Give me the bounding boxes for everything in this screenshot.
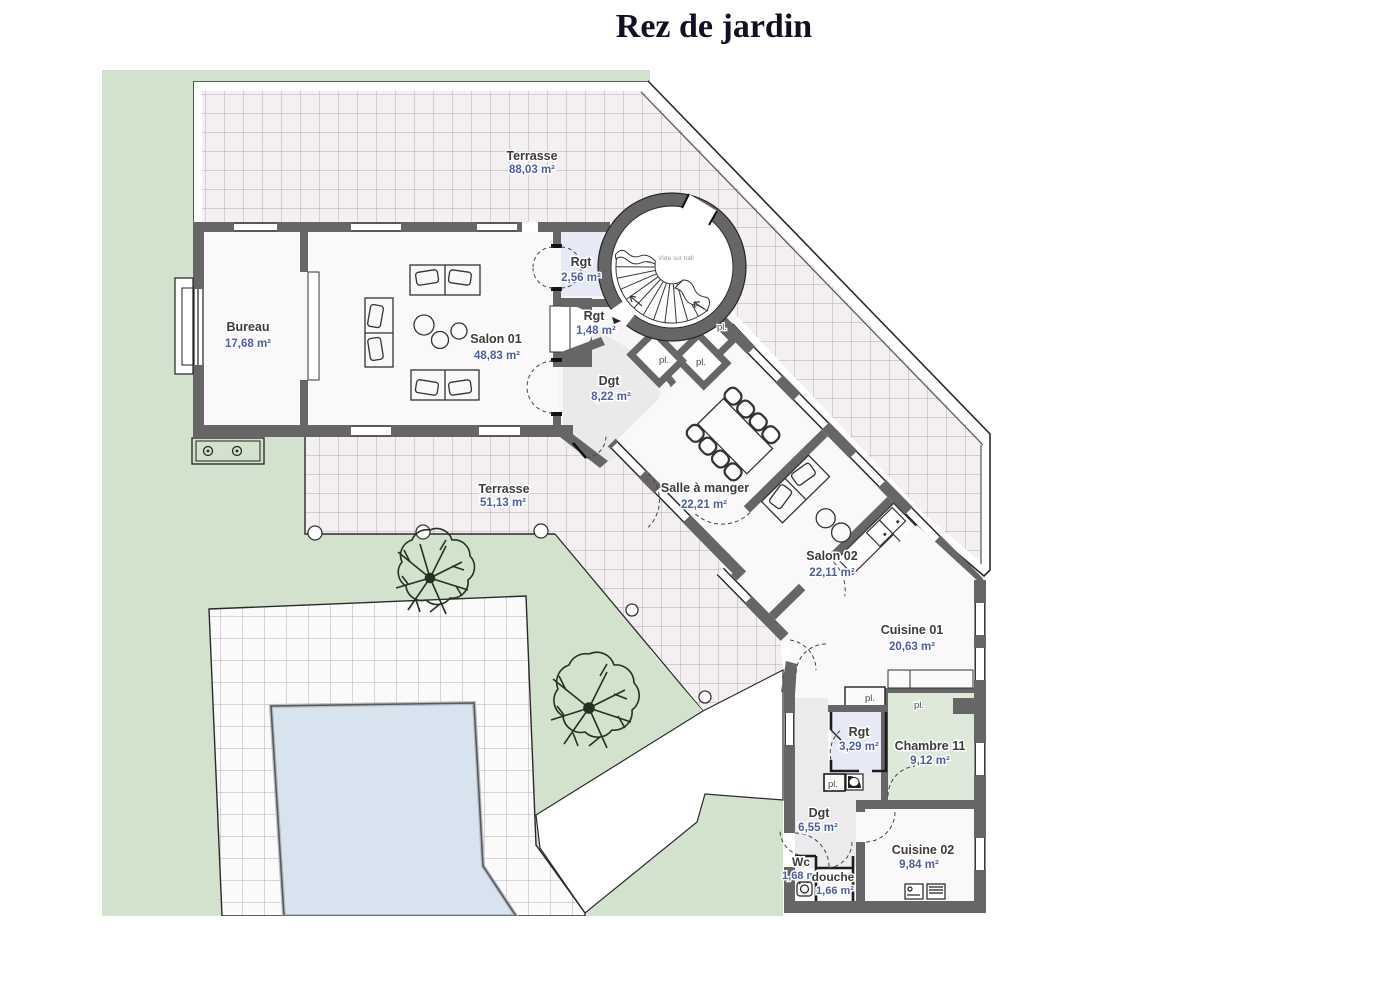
svg-text:Cuisine 01: Cuisine 01 <box>881 623 944 637</box>
svg-text:pl.: pl. <box>717 322 727 333</box>
svg-text:Salon 02: Salon 02 <box>806 549 857 563</box>
svg-text:9,84 m²: 9,84 m² <box>899 859 939 871</box>
svg-text:9,12 m²: 9,12 m² <box>910 755 950 767</box>
svg-text:pl.: pl. <box>865 693 875 704</box>
svg-text:Salon 01: Salon 01 <box>470 332 521 346</box>
svg-text:pl.: pl. <box>696 357 706 368</box>
svg-text:Rgt: Rgt <box>584 309 606 323</box>
svg-text:Dgt: Dgt <box>809 806 831 820</box>
svg-text:22,21 m²: 22,21 m² <box>681 499 727 511</box>
svg-text:douche: douche <box>812 870 855 884</box>
svg-text:Rez de jardin: Rez de jardin <box>616 8 813 45</box>
svg-text:Terrasse: Terrasse <box>506 149 557 163</box>
svg-text:1,66 m²: 1,66 m² <box>816 885 854 897</box>
svg-text:Dgt: Dgt <box>599 374 621 388</box>
svg-text:pl.: pl. <box>828 779 838 790</box>
svg-text:Rgt: Rgt <box>571 255 593 269</box>
svg-text:48,83 m²: 48,83 m² <box>474 350 520 362</box>
svg-text:51,13 m²: 51,13 m² <box>480 497 526 509</box>
svg-text:Terrasse: Terrasse <box>478 482 529 496</box>
svg-text:88,03 m²: 88,03 m² <box>509 164 555 176</box>
svg-text:20,63 m²: 20,63 m² <box>889 641 935 653</box>
svg-text:2,56 m²: 2,56 m² <box>561 272 601 284</box>
svg-text:pl.: pl. <box>659 355 669 366</box>
svg-text:8,22 m²: 8,22 m² <box>591 391 631 403</box>
svg-text:Salle à manger: Salle à manger <box>661 481 749 495</box>
svg-text:Cuisine 02: Cuisine 02 <box>892 843 955 857</box>
svg-text:Wc: Wc <box>792 855 810 869</box>
svg-text:22,11 m²: 22,11 m² <box>809 567 855 579</box>
svg-text:Rgt: Rgt <box>849 725 871 739</box>
svg-text:Chambre 11: Chambre 11 <box>895 739 966 753</box>
svg-text:pl.: pl. <box>914 700 924 711</box>
svg-text:1,48 m²: 1,48 m² <box>576 325 616 337</box>
svg-text:Bureau: Bureau <box>226 320 269 334</box>
svg-text:3,29 m²: 3,29 m² <box>839 741 879 753</box>
svg-text:Vide sur hall: Vide sur hall <box>658 255 694 262</box>
svg-text:6,55 m²: 6,55 m² <box>798 822 838 834</box>
svg-text:17,68 m²: 17,68 m² <box>225 338 271 350</box>
